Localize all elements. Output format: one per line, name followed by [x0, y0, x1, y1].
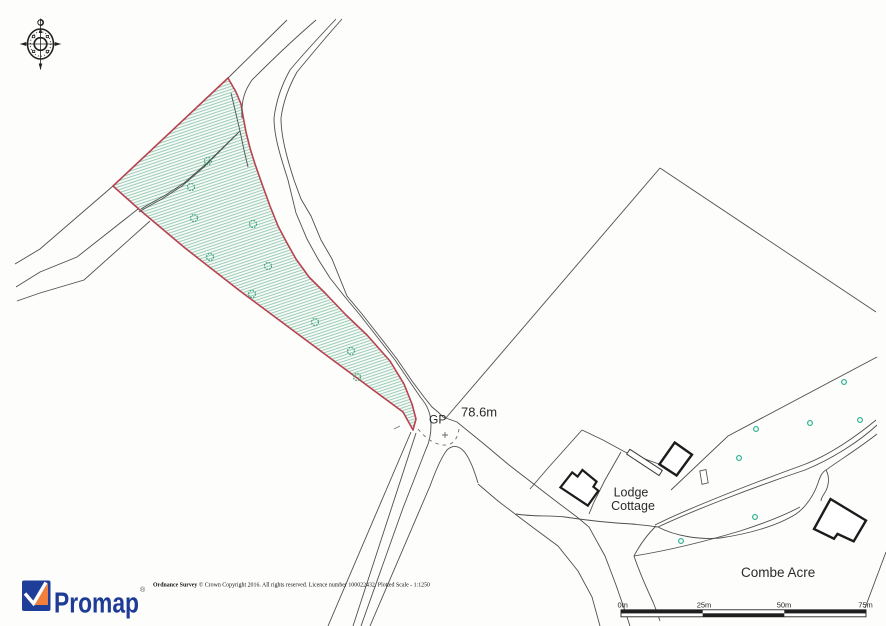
svg-text:25m: 25m — [697, 601, 712, 610]
svg-text:75m: 75m — [858, 601, 873, 610]
svg-text:Cottage: Cottage — [611, 499, 655, 513]
svg-text:50m: 50m — [777, 601, 792, 610]
svg-text:78.6m: 78.6m — [461, 405, 497, 420]
svg-text:Combe Acre: Combe Acre — [741, 565, 815, 580]
svg-text:®: ® — [140, 586, 146, 594]
svg-text:Lodge: Lodge — [614, 486, 649, 500]
svg-text:Promap: Promap — [54, 588, 139, 620]
svg-text:0m: 0m — [618, 601, 628, 610]
svg-text:GP: GP — [429, 413, 446, 427]
svg-text:Ordnance Survey © Crown Copyri: Ordnance Survey © Crown Copyright 2016. … — [153, 582, 430, 589]
